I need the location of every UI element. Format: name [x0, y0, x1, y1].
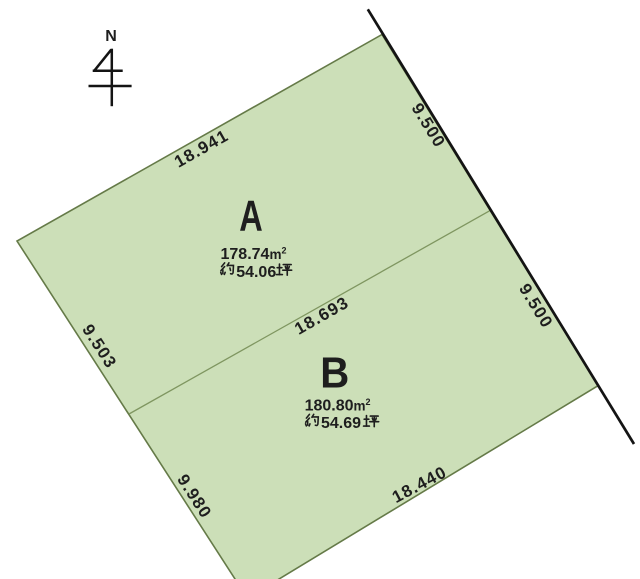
- svg-text:180.80m2: 180.80m2: [305, 397, 371, 415]
- svg-text:54.06: 54.06: [236, 264, 276, 281]
- svg-text:B: B: [320, 349, 349, 398]
- svg-text:N: N: [105, 28, 117, 45]
- svg-text:54.69: 54.69: [321, 415, 361, 432]
- svg-text:A: A: [239, 192, 263, 241]
- svg-text:178.74m2: 178.74m2: [221, 246, 287, 264]
